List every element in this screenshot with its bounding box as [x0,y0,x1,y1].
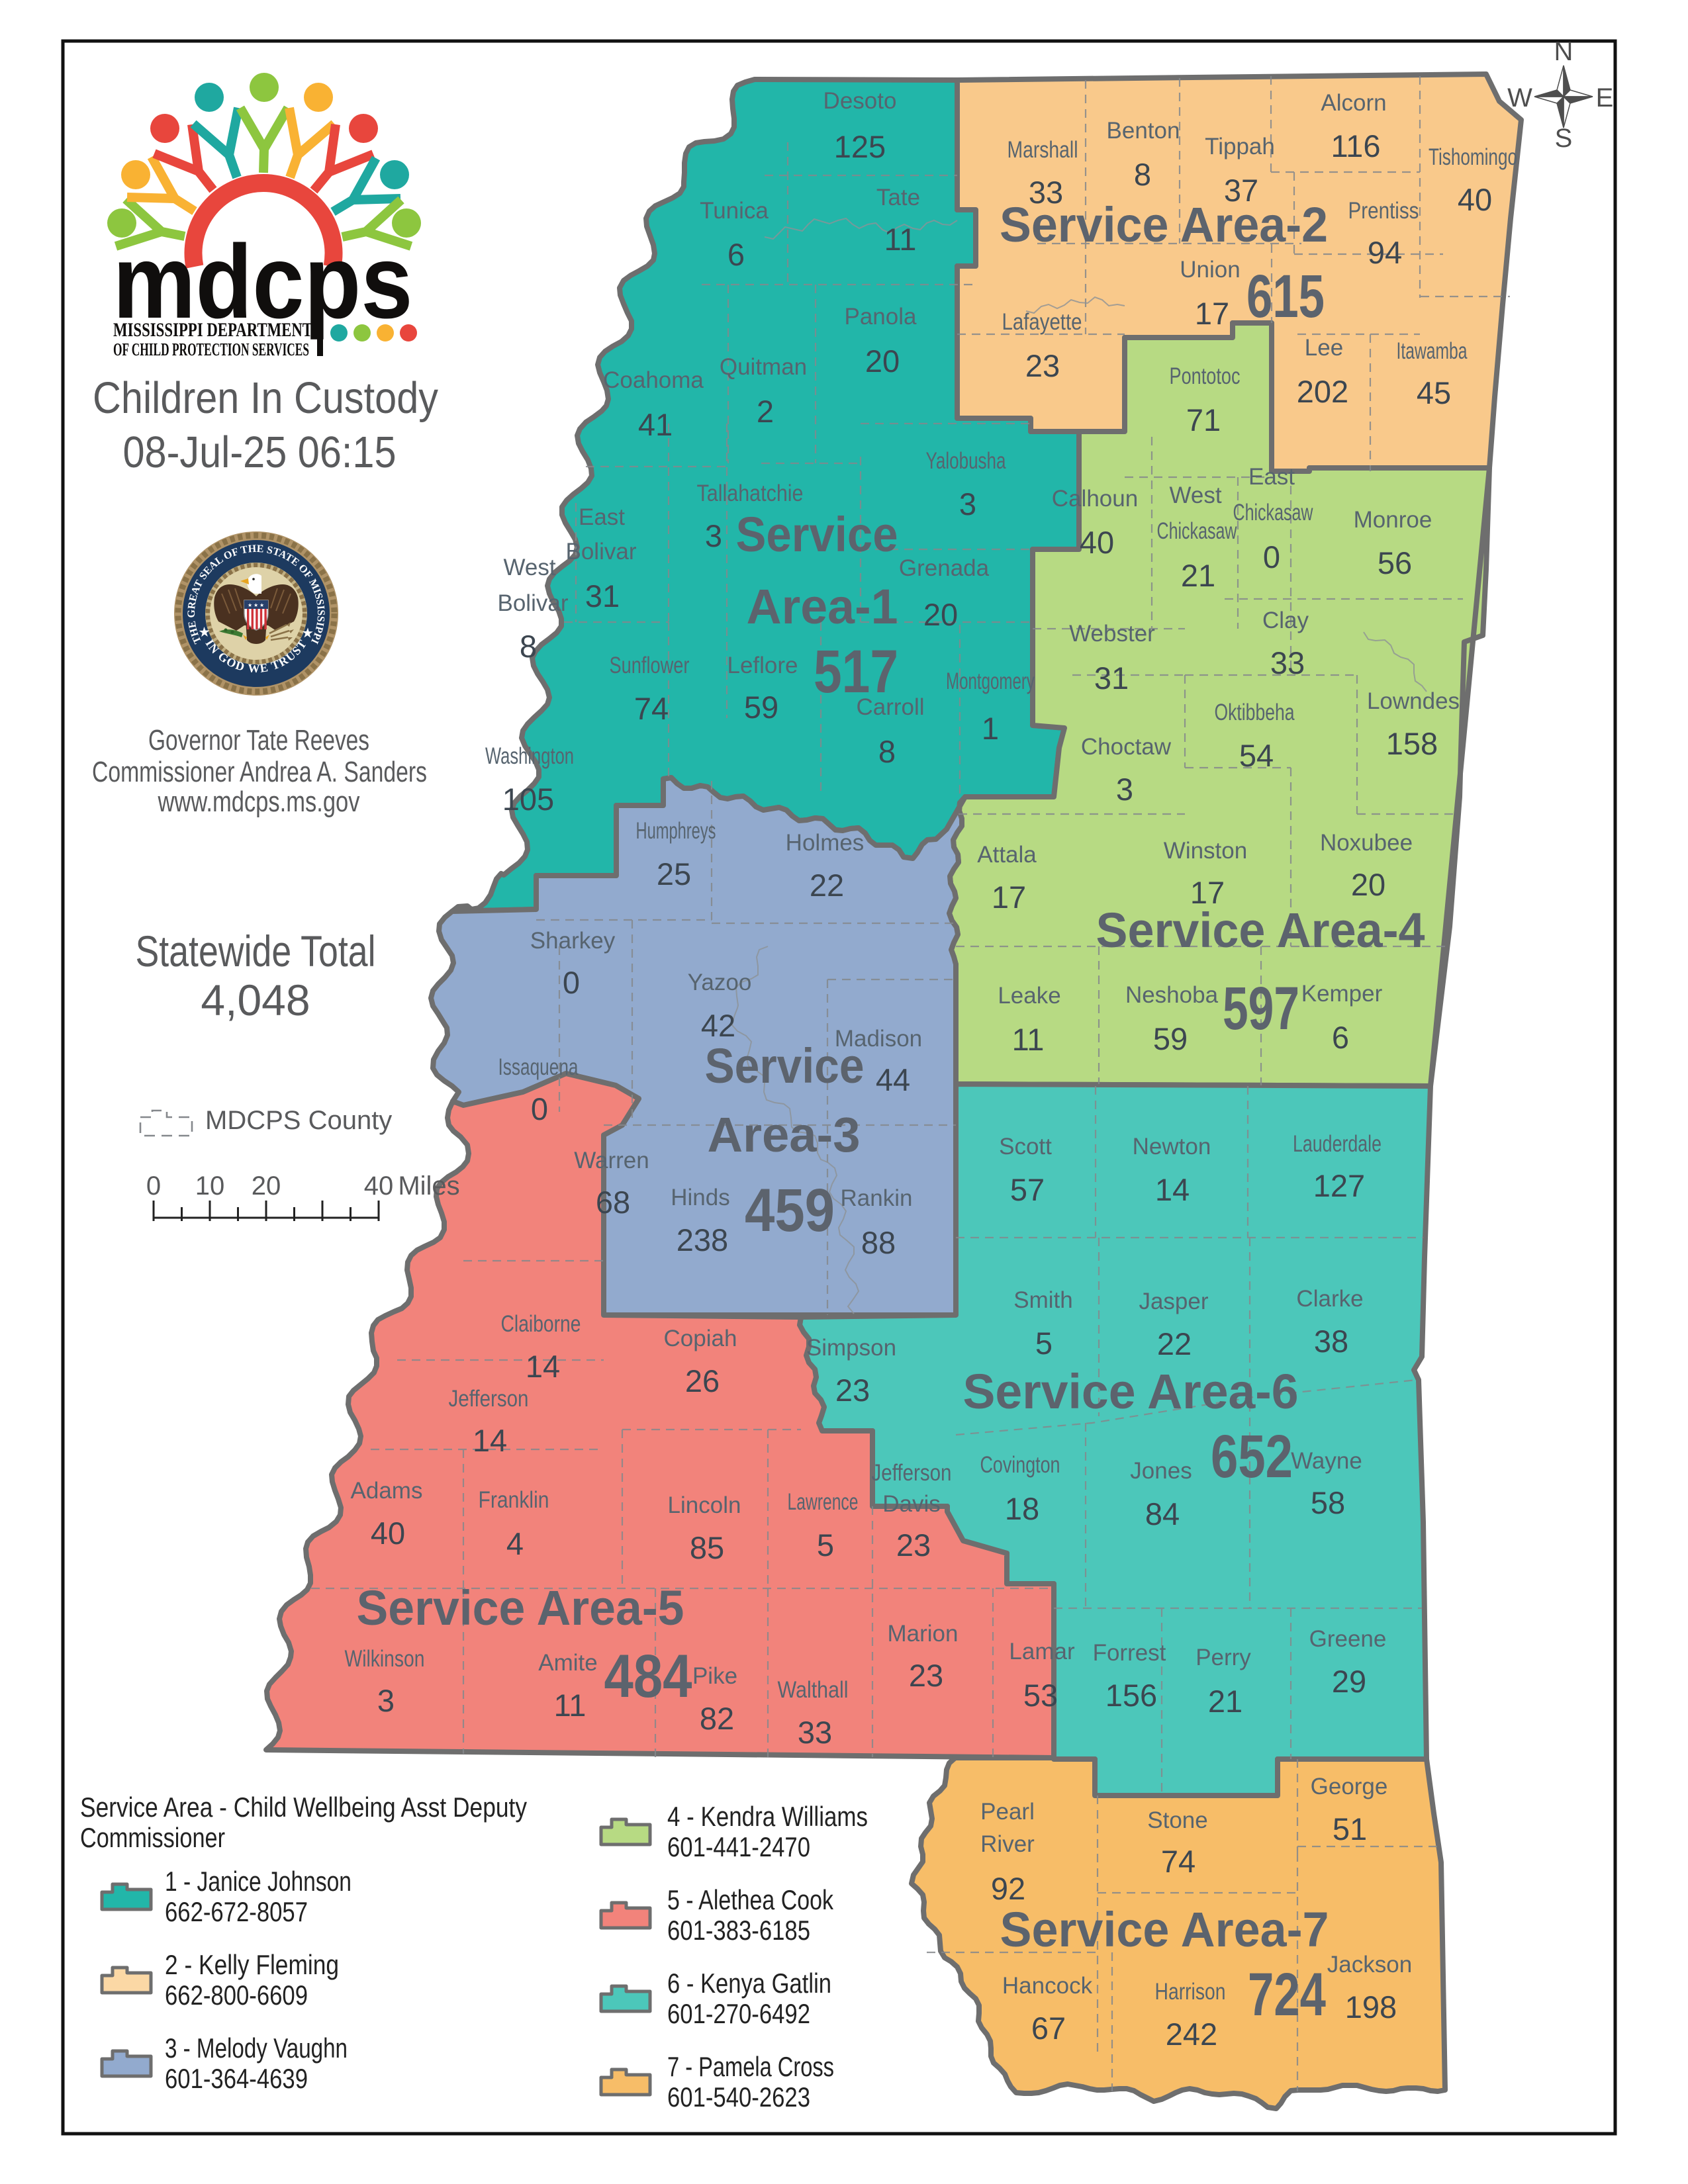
svg-text:Children In Custody: Children In Custody [93,373,438,423]
svg-text:2 - Kelly Fleming: 2 - Kelly Fleming [165,1949,339,1980]
svg-text:Claiborne: Claiborne [501,1311,581,1337]
svg-text:Lincoln: Lincoln [668,1492,741,1518]
svg-text:116: 116 [1331,128,1381,163]
svg-text:652: 652 [1211,1423,1293,1490]
svg-text:53: 53 [1023,1678,1058,1713]
svg-text:S: S [1555,124,1573,153]
svg-text:Sunflower: Sunflower [610,653,690,678]
svg-text:662-672-8057: 662-672-8057 [165,1896,308,1927]
svg-text:Calhoun: Calhoun [1052,486,1138,512]
svg-text:Tate: Tate [876,185,920,210]
svg-text:Alcorn: Alcorn [1321,90,1386,116]
svg-text:20: 20 [865,343,900,379]
svg-text:Holmes: Holmes [786,830,865,856]
svg-text:Warren: Warren [574,1148,649,1173]
svg-text:Harrison: Harrison [1155,1979,1226,2005]
svg-text:51: 51 [1333,1811,1367,1846]
svg-text:08-Jul-25 06:15: 08-Jul-25 06:15 [123,428,397,477]
svg-text:Marion: Marion [888,1621,959,1647]
svg-text:Miles: Miles [398,1171,459,1201]
svg-text:67: 67 [1031,2011,1066,2046]
svg-text:17: 17 [992,880,1026,915]
svg-text:22: 22 [810,868,844,903]
svg-text:Service Area-5: Service Area-5 [357,1580,684,1635]
svg-text:1 - Janice Johnson: 1 - Janice Johnson [165,1866,352,1897]
svg-text:Pontotoc: Pontotoc [1170,363,1241,389]
svg-text:Lawrence: Lawrence [788,1489,859,1515]
svg-text:10: 10 [195,1171,225,1201]
svg-text:8: 8 [1134,157,1151,192]
svg-text:54: 54 [1239,738,1274,773]
svg-text:Stone: Stone [1147,1807,1207,1833]
svg-text:1: 1 [982,711,999,746]
svg-text:Yazoo: Yazoo [688,970,752,995]
svg-text:Chickasaw: Chickasaw [1157,518,1238,544]
svg-text:74: 74 [1161,1844,1196,1879]
svg-text:Tallahatchie: Tallahatchie [697,480,804,506]
svg-text:202: 202 [1297,374,1348,409]
svg-text:Copiah: Copiah [664,1326,737,1351]
svg-text:N: N [1554,37,1573,66]
svg-text:Simpson: Simpson [806,1335,896,1361]
svg-text:Pike: Pike [692,1663,737,1689]
svg-text:484: 484 [604,1643,692,1710]
svg-text:Desoto: Desoto [823,88,897,114]
svg-text:26: 26 [685,1363,720,1398]
svg-text:92: 92 [991,1871,1025,1906]
svg-text:31: 31 [1094,660,1129,696]
svg-text:85: 85 [690,1530,724,1565]
svg-text:4,048: 4,048 [201,976,310,1024]
svg-text:23: 23 [896,1527,931,1563]
svg-text:Commissioner Andrea A. Sanders: Commissioner Andrea A. Sanders [92,756,427,788]
svg-text:44: 44 [876,1062,910,1097]
svg-text:Tippah: Tippah [1205,134,1275,159]
svg-text:82: 82 [700,1701,734,1736]
svg-text:Pearl: Pearl [980,1799,1035,1825]
svg-text:Kemper: Kemper [1301,981,1383,1007]
svg-text:Newton: Newton [1133,1134,1211,1160]
svg-text:Service Area - Child Wellbeing: Service Area - Child Wellbeing Asst Depu… [80,1792,527,1823]
svg-text:Area-3: Area-3 [708,1107,861,1162]
svg-text:38: 38 [1314,1324,1348,1359]
svg-text:29: 29 [1332,1664,1366,1699]
svg-text:Lauderdale: Lauderdale [1293,1131,1382,1157]
svg-text:58: 58 [1311,1485,1345,1520]
svg-text:East: East [1248,464,1295,490]
svg-text:59: 59 [1153,1021,1188,1056]
svg-text:5 - Alethea Cook: 5 - Alethea Cook [667,1884,834,1915]
svg-text:Greene: Greene [1309,1626,1387,1652]
svg-text:River: River [980,1831,1035,1857]
svg-text:23: 23 [835,1373,870,1408]
svg-text:Bolivar: Bolivar [566,539,637,565]
svg-text:Hancock: Hancock [1002,1973,1093,1999]
svg-text:21: 21 [1181,558,1215,593]
svg-text:3: 3 [959,486,976,522]
svg-text:11: 11 [1012,1022,1045,1057]
svg-text:Scott: Scott [999,1134,1052,1160]
svg-text:601-540-2623: 601-540-2623 [667,2081,810,2113]
svg-text:East: East [579,504,625,530]
svg-text:OF CHILD PROTECTION SERVICES: OF CHILD PROTECTION SERVICES [113,340,309,359]
svg-text:6 - Kenya Gatlin: 6 - Kenya Gatlin [667,1968,831,1999]
svg-text:Commissioner: Commissioner [80,1822,225,1853]
svg-text:40: 40 [1080,525,1114,560]
svg-text:Quitman: Quitman [720,354,807,380]
svg-text:84: 84 [1145,1496,1180,1531]
svg-text:Noxubee: Noxubee [1320,830,1413,856]
svg-text:Tishomingo: Tishomingo [1429,144,1517,170]
svg-text:21: 21 [1208,1684,1243,1719]
svg-text:14: 14 [526,1349,560,1384]
svg-text:18: 18 [1005,1491,1039,1526]
svg-text:601-364-4639: 601-364-4639 [165,2063,308,2094]
svg-text:E: E [1596,83,1614,113]
svg-text:3 - Melody Vaughn: 3 - Melody Vaughn [165,2032,348,2064]
svg-text:6: 6 [727,237,745,272]
svg-text:Covington: Covington [980,1452,1060,1478]
svg-text:71: 71 [1186,402,1221,437]
svg-text:57: 57 [1010,1172,1045,1207]
svg-text:198: 198 [1345,1989,1397,2025]
svg-text:★: ★ [248,602,252,608]
svg-text:www.mdcps.ms.gov: www.mdcps.ms.gov [158,786,360,818]
svg-text:Webster: Webster [1069,621,1155,647]
svg-text:Washington: Washington [485,743,574,769]
svg-text:0: 0 [531,1091,548,1126]
svg-text:20: 20 [252,1171,281,1201]
svg-text:Prentiss: Prentiss [1348,198,1419,224]
svg-text:Rankin: Rankin [841,1185,913,1211]
svg-text:Clarke: Clarke [1296,1286,1363,1312]
svg-text:33: 33 [1270,645,1305,680]
svg-text:6: 6 [1332,1020,1349,1055]
svg-text:Marshall: Marshall [1008,137,1078,163]
svg-text:59: 59 [744,690,778,725]
svg-text:W: W [1507,83,1532,113]
svg-text:22: 22 [1157,1326,1192,1361]
svg-text:★: ★ [254,602,258,608]
svg-text:14: 14 [1155,1172,1190,1207]
svg-text:Jones: Jones [1130,1458,1192,1484]
svg-text:Oktibbeha: Oktibbeha [1215,700,1295,725]
svg-text:8: 8 [520,629,537,664]
svg-text:662-800-6609: 662-800-6609 [165,1979,308,2011]
svg-text:MDCPS County: MDCPS County [205,1106,392,1135]
svg-text:Montgomery: Montgomery [946,668,1035,694]
svg-text:Wilkinson: Wilkinson [345,1646,425,1672]
svg-text:Walthall: Walthall [778,1677,849,1703]
svg-text:Lowndes: Lowndes [1367,688,1460,714]
svg-text:Itawamba: Itawamba [1397,338,1468,364]
svg-text:23: 23 [1025,348,1060,383]
svg-text:Service Area-4: Service Area-4 [1096,903,1425,958]
svg-text:0: 0 [1263,539,1280,574]
svg-text:20: 20 [923,597,958,632]
svg-text:8: 8 [878,734,896,769]
svg-text:MISSISSIPPI DEPARTMENT: MISSISSIPPI DEPARTMENT [113,319,312,341]
svg-text:11: 11 [554,1688,586,1723]
svg-text:Jefferson: Jefferson [449,1386,529,1412]
svg-text:14: 14 [473,1423,507,1458]
svg-text:Perry: Perry [1196,1645,1251,1670]
svg-text:517: 517 [814,638,898,705]
svg-text:17: 17 [1195,296,1229,331]
svg-text:George: George [1311,1774,1388,1799]
svg-text:41: 41 [638,407,673,442]
svg-text:4: 4 [506,1526,524,1561]
svg-text:Forrest: Forrest [1093,1640,1166,1666]
svg-text:125: 125 [834,129,886,164]
svg-text:Coahoma: Coahoma [603,367,704,393]
svg-text:2: 2 [757,394,774,429]
svg-text:Neshoba: Neshoba [1125,982,1219,1008]
svg-text:Clay: Clay [1262,608,1309,633]
svg-text:Service: Service [705,1038,865,1093]
svg-text:Humphreys: Humphreys [636,818,716,844]
svg-text:7 - Pamela Cross: 7 - Pamela Cross [667,2051,834,2082]
svg-text:5: 5 [1035,1326,1053,1361]
svg-text:724: 724 [1248,1961,1326,2028]
svg-text:Winston: Winston [1164,838,1247,864]
svg-text:40: 40 [371,1516,405,1551]
svg-text:597: 597 [1223,975,1299,1042]
svg-text:156: 156 [1105,1678,1157,1713]
svg-text:Wayne: Wayne [1291,1448,1362,1474]
svg-text:Service Area-7: Service Area-7 [1000,1902,1329,1957]
svg-text:3: 3 [705,518,722,553]
svg-text:Amite: Amite [538,1650,597,1676]
svg-text:Hinds: Hinds [671,1185,729,1210]
svg-text:★: ★ [259,602,264,608]
svg-text:127: 127 [1313,1168,1365,1203]
svg-text:Adams: Adams [351,1478,423,1504]
svg-text:Panola: Panola [845,304,917,330]
svg-text:238: 238 [677,1222,728,1257]
svg-text:5: 5 [817,1527,834,1563]
svg-text:615: 615 [1246,263,1325,330]
svg-text:Governor Tate Reeves: Governor Tate Reeves [148,724,369,756]
svg-text:Benton: Benton [1107,118,1180,144]
svg-text:Monroe: Monroe [1354,507,1432,533]
svg-text:West: West [503,555,555,580]
svg-text:20: 20 [1351,867,1385,902]
svg-text:Yalobusha: Yalobusha [926,448,1006,474]
svg-text:Jackson: Jackson [1327,1952,1412,1978]
svg-text:40: 40 [364,1171,394,1201]
svg-text:601-270-6492: 601-270-6492 [667,1998,810,2029]
svg-text:3: 3 [377,1683,395,1718]
svg-text:Bolivar: Bolivar [498,590,569,616]
svg-text:94: 94 [1368,235,1402,270]
svg-text:158: 158 [1386,726,1438,761]
svg-text:Lamar: Lamar [1009,1639,1075,1664]
svg-text:Davis: Davis [882,1491,941,1517]
svg-text:Lafayette: Lafayette [1002,309,1082,335]
svg-text:Service Area-2: Service Area-2 [1000,197,1328,252]
svg-text:601-441-2470: 601-441-2470 [667,1831,810,1862]
svg-text:459: 459 [745,1177,835,1244]
svg-text:Issaquena: Issaquena [498,1054,579,1080]
svg-text:25: 25 [657,856,691,891]
svg-text:Service Area-6: Service Area-6 [963,1364,1299,1419]
svg-text:88: 88 [861,1225,896,1260]
svg-text:45: 45 [1417,375,1451,410]
svg-text:Leflore: Leflore [727,653,798,678]
svg-text:Franklin: Franklin [479,1487,549,1513]
svg-text:0: 0 [563,965,580,1000]
svg-text:56: 56 [1378,545,1412,580]
svg-text:Sharkey: Sharkey [530,928,616,954]
svg-text:Leake: Leake [998,983,1060,1009]
svg-text:68: 68 [596,1185,630,1220]
svg-text:Union: Union [1180,257,1240,283]
svg-text:Choctaw: Choctaw [1081,734,1172,760]
svg-text:Chickasaw: Chickasaw [1233,500,1314,525]
svg-text:Grenada: Grenada [899,555,990,581]
svg-text:601-383-6185: 601-383-6185 [667,1915,810,1946]
svg-text:33: 33 [798,1715,832,1750]
svg-text:Jasper: Jasper [1139,1289,1208,1314]
svg-text:Statewide Total: Statewide Total [136,927,376,976]
svg-text:40: 40 [1458,182,1492,217]
svg-text:4 - Kendra Williams: 4 - Kendra Williams [667,1801,868,1832]
svg-text:Area-1: Area-1 [747,579,898,634]
svg-text:23: 23 [909,1658,943,1693]
svg-text:Jefferson: Jefferson [872,1460,952,1486]
svg-text:Tunica: Tunica [700,198,769,224]
svg-text:31: 31 [585,578,620,614]
svg-text:242: 242 [1166,2017,1217,2052]
svg-text:11: 11 [884,222,917,257]
svg-text:3: 3 [1116,772,1133,807]
svg-text:0: 0 [146,1171,161,1201]
svg-text:Attala: Attala [977,842,1037,868]
svg-text:West: West [1169,482,1221,508]
svg-text:Service: Service [736,507,898,562]
svg-text:Lee: Lee [1305,335,1343,361]
svg-text:74: 74 [634,691,669,726]
svg-text:Smith: Smith [1013,1287,1072,1313]
svg-text:105: 105 [502,782,554,817]
